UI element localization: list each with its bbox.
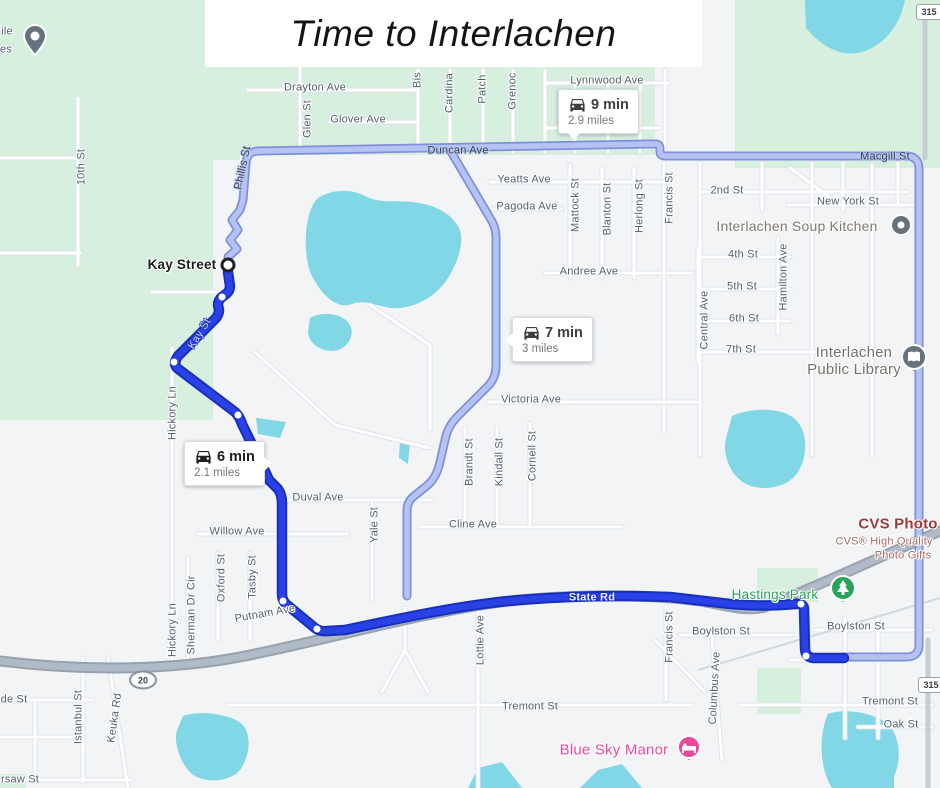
title-banner: Time to Interlachen <box>205 0 702 67</box>
soup-kitchen-pin[interactable] <box>888 212 914 242</box>
route-bubble-9min[interactable]: 9 min 2.9 miles <box>558 89 639 134</box>
highway-shield-315: 315 <box>916 4 940 20</box>
route-duration: 7 min <box>545 325 583 341</box>
route-duration: 9 min <box>591 97 629 113</box>
car-icon <box>522 323 541 342</box>
car-icon <box>568 95 587 114</box>
route-bubble-6min[interactable]: 6 min 2.1 miles <box>184 441 265 486</box>
route-distance: 2.9 miles <box>568 115 629 127</box>
library-pin[interactable] <box>899 343 929 377</box>
car-icon <box>194 447 213 466</box>
page-title: Time to Interlachen <box>291 13 617 55</box>
map-screenshot: 10th StileesDrayton AveGlen StGlover Ave… <box>0 0 940 788</box>
route-bubble-7min[interactable]: 7 min 3 miles <box>512 317 593 362</box>
highway-shield-315: 315 <box>918 677 940 693</box>
highway-shield-20: 20 <box>129 671 157 690</box>
mobile-home-pin[interactable] <box>21 23 49 57</box>
bubble-pointer <box>567 132 581 140</box>
lodging-pin[interactable] <box>675 734 703 766</box>
park-pin[interactable] <box>828 574 858 608</box>
route-duration: 6 min <box>217 449 255 465</box>
bubble-pointer <box>264 457 272 471</box>
bubble-pointer <box>505 333 513 347</box>
origin-marker[interactable] <box>222 259 234 271</box>
route-distance: 2.1 miles <box>194 467 255 479</box>
map-label-interlachen-soup-kitchen: Interlachen Soup Kitchen <box>716 218 877 234</box>
route-distance: 3 miles <box>522 343 583 355</box>
